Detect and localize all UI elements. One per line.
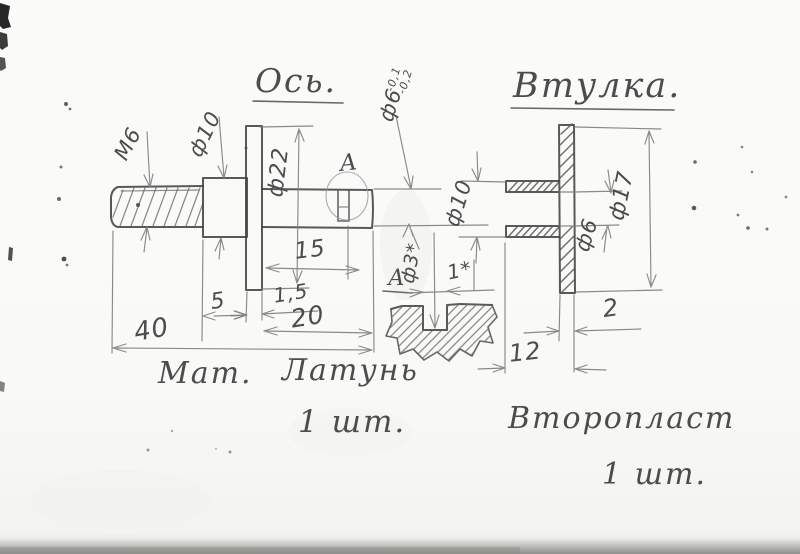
shaft-title-underline: [253, 101, 343, 103]
bushing-drawing: Втулка. ф10 ф6 ф17: [440, 66, 682, 373]
dim-collar-length: 5: [209, 288, 227, 315]
scanned-drawing-page: Ось. А M6 ф10: [0, 0, 800, 554]
bushing-flange-hatch: [560, 124, 574, 292]
shaft-quantity: 1 шт.: [298, 404, 406, 440]
bushing-quantity: 1 шт.: [602, 457, 707, 492]
shaft-groove: [338, 190, 349, 221]
dim-bushing-flange-thickness: 2: [601, 293, 621, 323]
bushing-tube: [506, 181, 574, 237]
dim-slot-width: 1*: [445, 256, 474, 285]
bushing-flange: [559, 125, 575, 293]
shaft-thread-section: [111, 186, 203, 227]
bushing-title-underline: [511, 108, 674, 110]
dim-flange-diameter-group: ф22: [260, 126, 313, 289]
detail-slot-outline: [391, 304, 492, 330]
dim-total-length: 40: [132, 312, 172, 348]
dim-collar-length-group: 5: [202, 240, 247, 341]
material-label: Мат.: [157, 356, 253, 391]
dim-thread: M6: [109, 123, 146, 164]
dim-groove-offset-group: 15: [266, 226, 359, 279]
dim-collar-diameter: ф10: [183, 107, 225, 160]
shaft-material: Латунь: [280, 353, 419, 388]
dim-flange-diameter: ф22: [263, 146, 294, 198]
dim-bushing-length: 12: [508, 336, 543, 367]
bushing-material: Второпласт: [507, 401, 735, 436]
dim-tube-diameter-group: ф10: [440, 152, 506, 263]
dim-tube-diameter: ф10: [440, 177, 477, 230]
dim-total-length-group: 40: [112, 231, 372, 354]
shaft-title: Ось.: [255, 61, 337, 100]
technical-drawing: Ось. А M6 ф10: [0, 0, 800, 554]
detail-callout-circle: [326, 172, 368, 220]
shaft-drawing: Ось. А M6 ф10: [109, 61, 488, 354]
bushing-title: Втулка.: [512, 66, 681, 106]
dim-front-length: 20: [289, 300, 327, 334]
dim-groove-offset: 15: [293, 235, 327, 265]
shaft-flange: [246, 126, 262, 290]
dim-slot-diameter-group: ф3*: [397, 233, 439, 328]
material-notes: Мат. Латунь 1 шт. Второпласт 1 шт.: [157, 353, 735, 492]
dim-bushing-length-group: 12: [478, 243, 606, 373]
shaft-collar: [203, 178, 247, 237]
dim-bushing-flange-diameter-group: ф17: [575, 127, 662, 292]
detail-callout-letter: А: [336, 149, 360, 177]
